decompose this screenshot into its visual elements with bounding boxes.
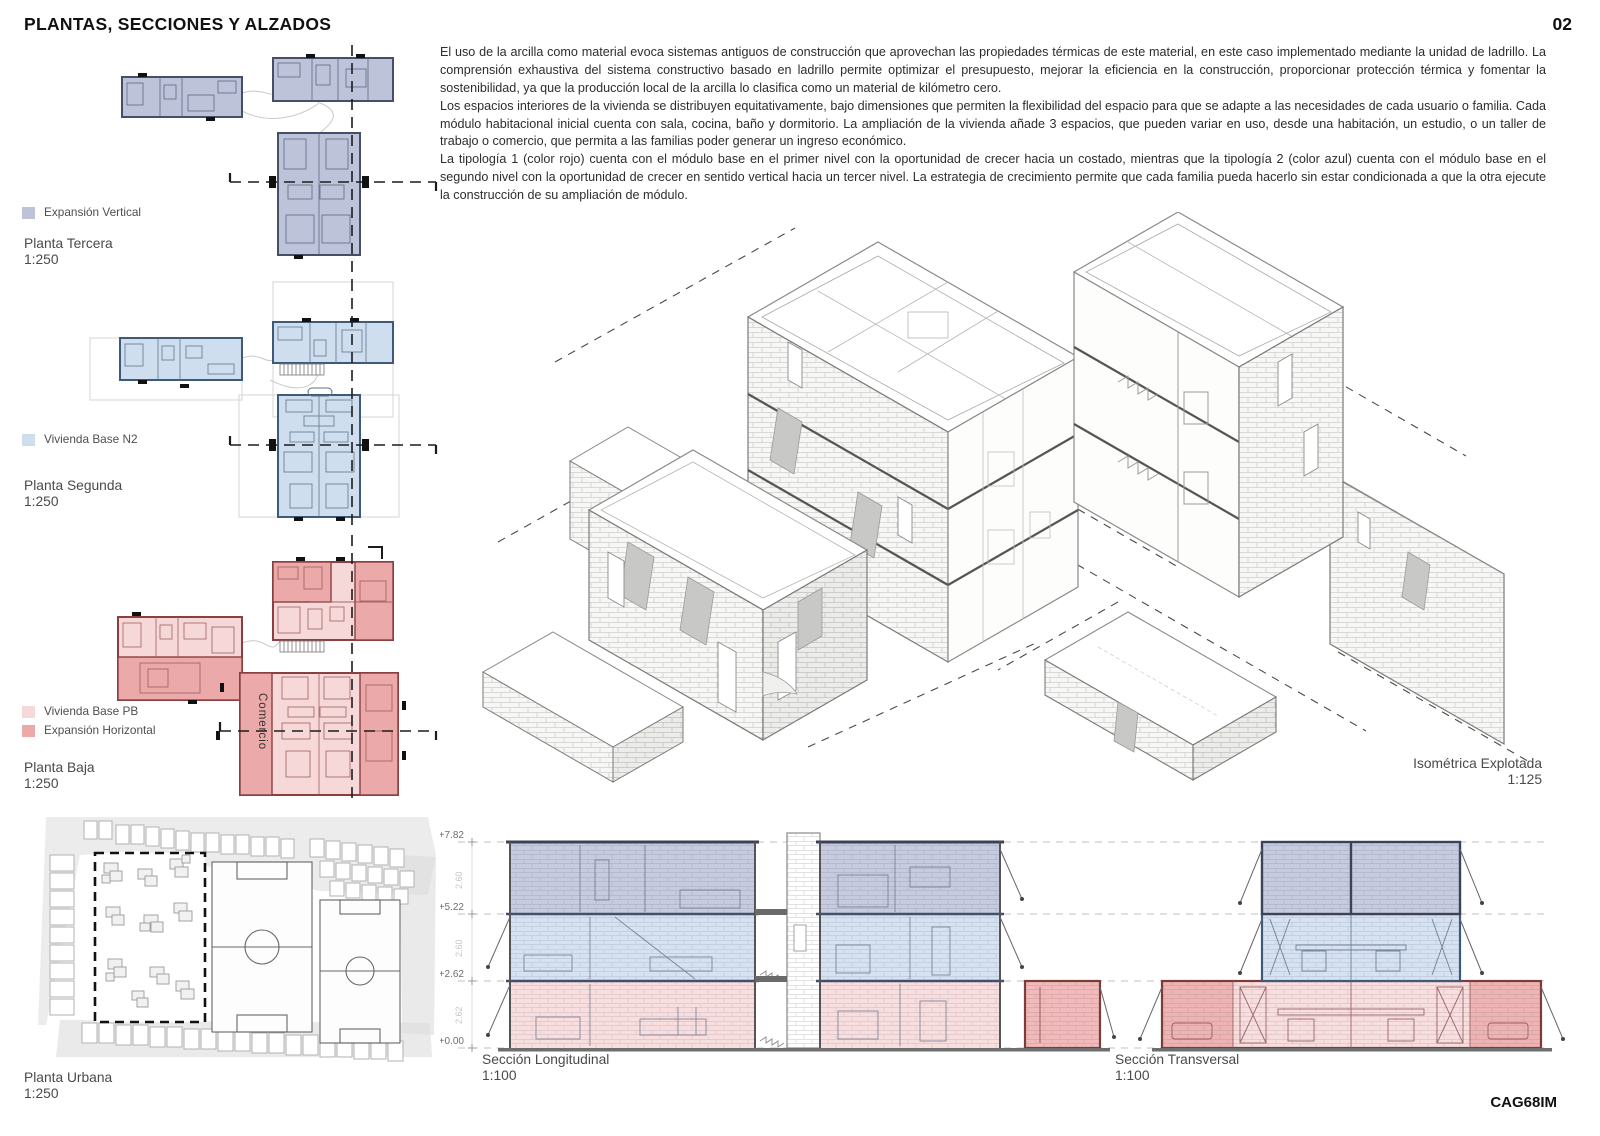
ground-line [1152,1048,1552,1052]
floor-height-label: 2.60 [454,871,464,889]
panel-title-planta-segunda: Planta Segunda 1:250 [24,478,122,510]
module-block [273,318,393,375]
panel-title-planta-tercera: Planta Tercera 1:250 [24,236,113,268]
ground-line [498,1048,1110,1052]
level-label: +7.82 [440,830,464,841]
legend-expansion-vertical: Expansión Vertical [22,204,141,221]
comercio-label: Comercio [256,693,268,750]
isometric-drawing [478,212,1548,792]
legend-label: Expansión Horizontal [44,722,155,739]
legend-swatch-vivienda-base-pb [22,706,35,718]
module-block [273,54,393,101]
legend-vivienda-base-n2: Vivienda Base N2 [22,431,138,448]
legend-swatch-vivienda-base-n2 [22,434,35,446]
panel-title-isometrica: Isométrica Explotada 1:125 [1356,756,1542,788]
seccion-longitudinal [486,833,1116,1052]
page-title: PLANTAS, SECCIONES Y ALZADOS [24,14,331,35]
legend-swatch-expansion-vertical [22,207,35,219]
dimension-string: +7.82 +5.22 +2.62 +0.00 2.60 2.60 2.62 [440,830,476,1052]
stair-core [755,833,820,1048]
paragraph-2: Los espacios interiores de la vivienda s… [440,98,1546,152]
sheet-code: CAG68IM [1490,1094,1557,1111]
module-block: Comercio [216,673,406,795]
legend-swatch-expansion-horizontal [22,725,35,737]
presentation-board: PLANTAS, SECCIONES Y ALZADOS 02 El uso d… [0,0,1600,1136]
panel-title-planta-urbana: Planta Urbana 1:250 [24,1070,112,1102]
site-boundary [95,853,205,1022]
description-text: El uso de la arcilla como material evoca… [440,44,1546,205]
panel-title-seccion-transversal: Sección Transversal 1:100 [1115,1052,1239,1084]
level-label: +5.22 [440,902,464,913]
module-block [120,338,242,388]
legend-label: Expansión Vertical [44,204,141,221]
iso-cutaway-right [1074,212,1343,597]
paragraph-3: La tipología 1 (color rojo) cuenta con e… [440,151,1546,205]
legend-vivienda-base-pb: Vivienda Base PB [22,703,138,720]
page-number: 02 [1553,14,1572,35]
level-label: +2.62 [440,969,464,980]
seccion-transversal [1138,842,1565,1052]
level-label: +0.00 [440,1036,464,1047]
module-block [278,388,360,521]
floor-height-label: 2.62 [454,1006,464,1024]
module-block [278,133,360,259]
planta-urbana-drawing [20,795,440,1065]
legend-label: Vivienda Base PB [44,703,138,720]
module-block [122,73,242,121]
module-block [273,557,393,652]
panel-title-seccion-longitudinal: Sección Longitudinal 1:100 [482,1052,609,1084]
iso-volume-ground [1045,612,1276,780]
football-field [212,862,312,1032]
football-field [320,900,400,1043]
legend-label: Vivienda Base N2 [44,431,138,448]
floor-height-label: 2.60 [454,939,464,957]
expansion-volume [1025,981,1116,1048]
legend-expansion-horizontal: Expansión Horizontal [22,722,155,739]
planta-baja-drawing: Comercio [20,535,440,798]
panel-title-planta-baja: Planta Baja 1:250 [24,760,95,792]
paragraph-1: El uso de la arcilla como material evoca… [440,44,1546,98]
sections-drawing: +7.82 +5.22 +2.62 +0.00 2.60 2.60 2.62 [440,805,1570,1060]
iso-brick-slab [1318,468,1504,744]
